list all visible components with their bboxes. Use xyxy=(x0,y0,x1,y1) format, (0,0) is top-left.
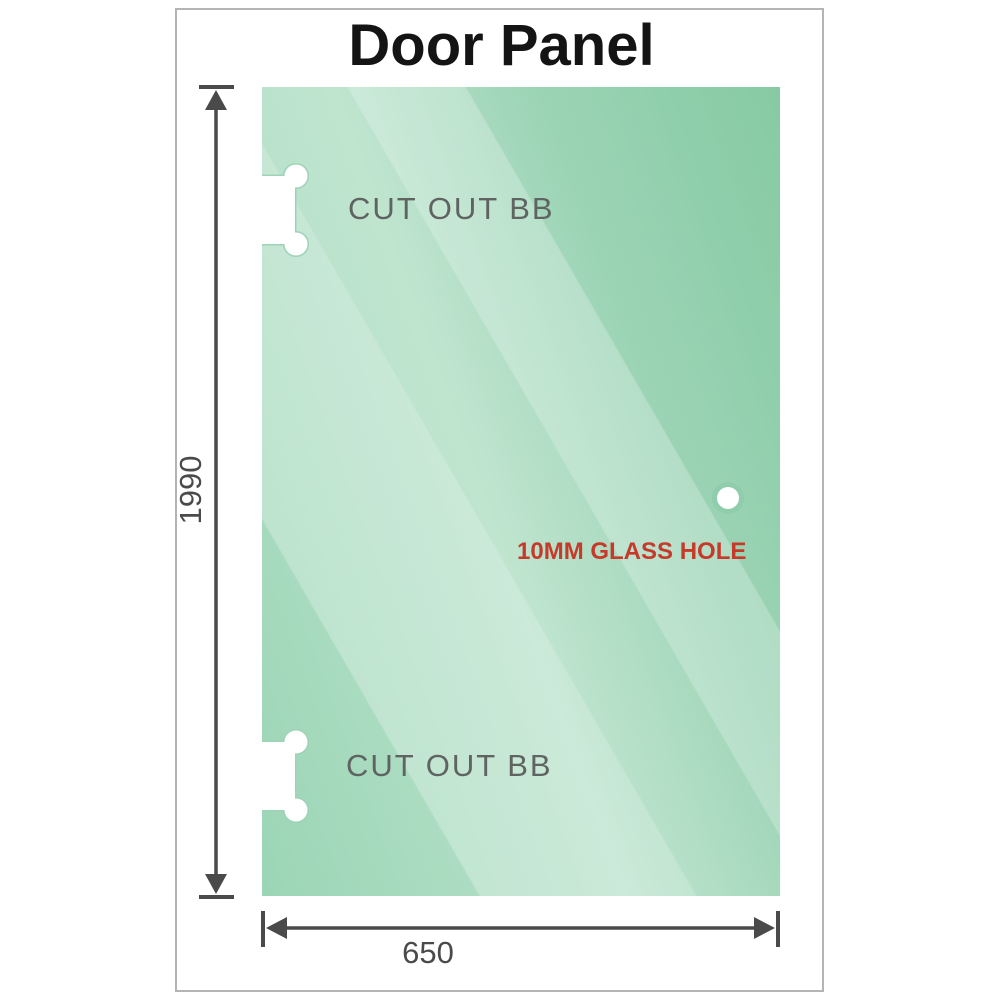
hinge-cutout-bottom xyxy=(258,731,308,822)
arrow-right-icon xyxy=(754,917,775,939)
arrow-down-icon xyxy=(205,874,227,894)
width-dimension-label: 650 xyxy=(402,935,454,971)
hinge-cutout-top-drill-bottom-fill xyxy=(285,233,308,256)
glass-hole-circle xyxy=(717,487,739,509)
cutout-label-top: CUT OUT BB xyxy=(348,191,555,227)
arrow-left-icon xyxy=(266,917,287,939)
diagram-canvas: Door Panel xyxy=(0,0,1000,1000)
arrow-up-icon xyxy=(205,90,227,110)
hinge-cutout-bottom-notch-fill xyxy=(258,742,295,810)
height-dimension-label: 1990 xyxy=(173,456,209,525)
hinge-cutout-bottom-drill-top-fill xyxy=(285,731,308,754)
width-dimension xyxy=(263,911,778,947)
hinge-cutout-bottom-drill-bottom-fill xyxy=(285,799,308,822)
hinge-cutout-top-notch-fill xyxy=(258,176,295,244)
hinge-cutout-top xyxy=(258,165,308,256)
glass-hole xyxy=(712,482,744,514)
glass-hole-label: 10MM GLASS HOLE xyxy=(517,538,746,566)
cutout-label-bottom: CUT OUT BB xyxy=(346,748,553,784)
diagram-overlay xyxy=(0,0,1000,1000)
hinge-cutout-top-drill-top-fill xyxy=(285,165,308,188)
